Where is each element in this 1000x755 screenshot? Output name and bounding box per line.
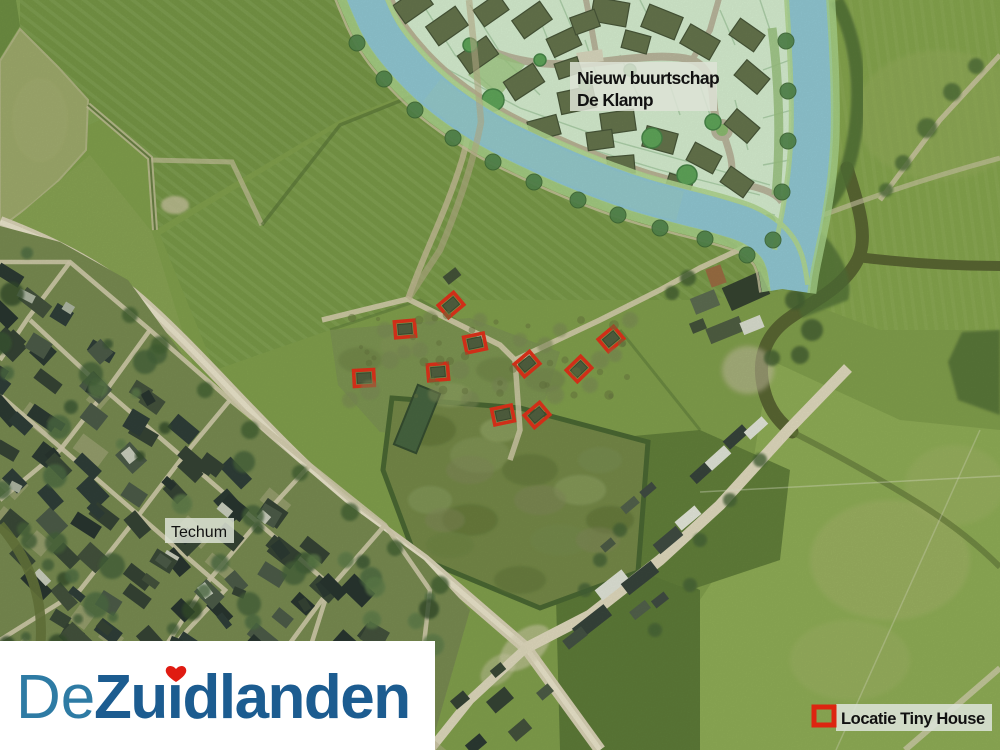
svg-text:Techum: Techum [171,524,227,541]
svg-text:De: De [16,663,95,732]
svg-text:Zuidlanden: Zuidlanden [94,663,410,732]
svg-text:De Klamp: De Klamp [577,90,653,110]
svg-text:Nieuw buurtschap: Nieuw buurtschap [577,68,719,88]
svg-text:Locatie Tiny House: Locatie Tiny House [841,710,985,728]
